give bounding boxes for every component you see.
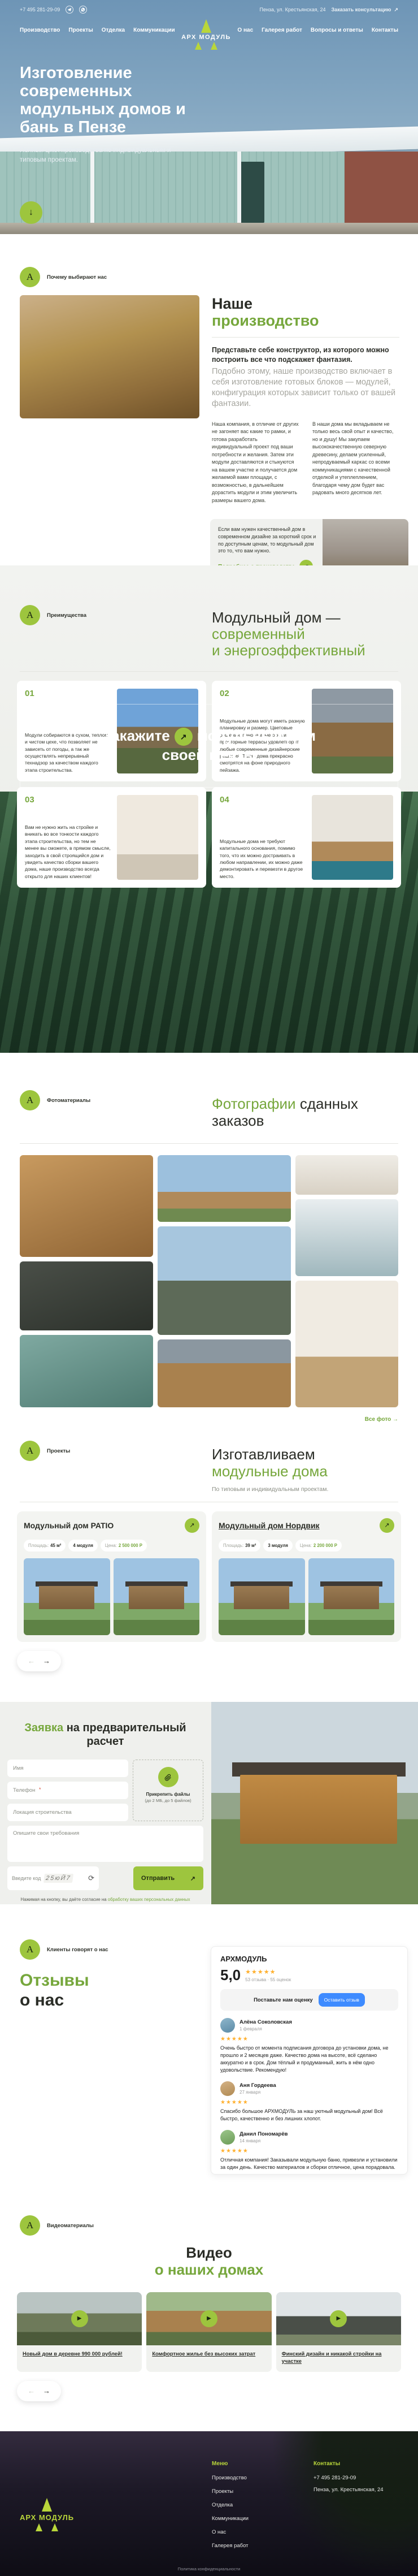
section-label-text: Проекты [47, 1448, 70, 1454]
production-lead-bold: Представьте себе конструктор, из которог… [212, 345, 399, 365]
reviewer-name: Алёна Соколовская [240, 2019, 292, 2025]
project-title[interactable]: Модульный дом PATIO [24, 1521, 114, 1530]
production-section: А Почему выбирают нас Нашепроизводство П… [0, 234, 418, 565]
gallery-photo[interactable] [158, 1339, 291, 1407]
whatsapp-icon[interactable] [79, 6, 87, 14]
review-text: Спасибо большое АРХМОДУЛЬ за наш уютный … [220, 2108, 398, 2123]
arrow-up-right-icon: ↗ [190, 1875, 195, 1882]
section-label-text: Видеоматериалы [47, 2223, 94, 2229]
advantage-photo [117, 795, 198, 880]
card-number: 04 [220, 795, 306, 805]
form-panel: Заявка на предварительный расчет * Прикр… [0, 1702, 211, 1904]
reviews-count: 53 отзыва · 55 оценок [245, 1977, 291, 1982]
video-caption[interactable]: Финский дизайн и никакой стройки на учас… [276, 2345, 401, 2372]
phone-field-wrap: * [7, 1782, 128, 1799]
play-icon[interactable]: ▶ [71, 2310, 88, 2327]
tree-icon [51, 2523, 58, 2531]
icon-glyph: ▶ [77, 2315, 82, 2322]
video-carousel-nav: ← → [17, 2381, 61, 2401]
hero-subtitle: Полный цикл производства по индивидуальн… [20, 146, 189, 166]
prev-arrow-icon[interactable]: ← [28, 1657, 35, 1665]
modules-pill: 4 модуля [68, 1540, 98, 1551]
all-photos-link[interactable]: Все фото → [20, 1416, 398, 1423]
avatar [220, 2130, 235, 2145]
photo-decoration [238, 162, 264, 223]
arrow-up-right-icon: ↗ [180, 732, 187, 742]
projects-heading: Изготавливаем модульные дома [212, 1446, 408, 1480]
divider [20, 1502, 398, 1502]
tree-icon [211, 42, 217, 50]
heading-green-part: Отзывы [20, 1971, 89, 1990]
phone-link[interactable]: +7 495 281-29-09 [20, 7, 60, 12]
video-card[interactable]: ▶ Новый дом в деревне 990 000 рублей! [17, 2292, 142, 2372]
link-text: Все фото [365, 1416, 391, 1423]
photo-decoration [129, 1586, 184, 1609]
card-text: Вам не нужно жить на стройке и вникать в… [25, 818, 111, 880]
gallery-photo[interactable] [158, 1226, 291, 1335]
order-button[interactable]: ↗ [175, 728, 193, 746]
heading-green-part: модульные дома [212, 1463, 328, 1480]
video-thumbnail[interactable]: ▶ [146, 2292, 271, 2345]
rating-value: 5,0 [220, 1968, 241, 1982]
attach-hint: (до 2 МБ, до 5 файлов) [138, 1798, 198, 1803]
rate-prompt: Поставьте нам оценку [254, 1997, 313, 2003]
photo-decoration [234, 1586, 289, 1609]
card-number: 03 [25, 795, 111, 805]
gallery-photo[interactable] [20, 1261, 153, 1330]
heading-green-part: современный [212, 625, 305, 642]
production-photo [20, 295, 199, 418]
project-card-nordvik[interactable]: Модульный дом Нордвик ↗ Площадь:39 м² 3 … [212, 1511, 401, 1642]
advantage-card-04: 04 Модульные дома не требуют капитальног… [212, 787, 401, 888]
projects-section: А Проекты Изготавливаем модульные дома П… [0, 1425, 418, 1702]
prev-arrow-icon[interactable]: ← [28, 2387, 35, 2395]
card-number: 01 [25, 689, 111, 698]
production-column-2: В наши дома мы вкладываем не только весь… [312, 421, 399, 505]
review-date: 27 января [240, 2090, 276, 2095]
cta-card-text: Если вам нужен качественный дом в соврем… [218, 526, 317, 555]
review-item: Данил Пономарёв14 января ★★★★★ Отличная … [220, 2130, 398, 2171]
reviews-section: А Клиенты говорят о нас Отзывы о нас АРХ… [0, 1904, 418, 2194]
location-field[interactable] [7, 1804, 128, 1821]
video-thumbnail[interactable]: ▶ [276, 2292, 401, 2345]
star-icons: ★★★★★ [245, 1969, 291, 1976]
widget-org-name: АРХМОДУЛЬ [220, 1955, 398, 1963]
icon-glyph: ▶ [336, 2315, 341, 2322]
advantages-heading: Модульный дом — современный и энергоэффе… [212, 610, 398, 659]
nav-item-communications[interactable]: Коммуникации [133, 27, 175, 33]
icon-glyph: ↗ [189, 1522, 194, 1529]
play-icon[interactable]: ▶ [330, 2310, 347, 2327]
icon-glyph: ▶ [207, 2315, 211, 2322]
consent-text-part: Нажимая на кнопку, вы даёте согласие на [21, 1897, 107, 1902]
video-thumbnail[interactable]: ▶ [17, 2292, 142, 2345]
footer-contacts: Контакты +7 495 281-29-09 Пенза, ул. Кре… [313, 2461, 384, 2499]
pill-value: 3 модуля [268, 1543, 288, 1548]
project-photo[interactable] [219, 1558, 305, 1635]
photo-decoration [271, 2431, 418, 2576]
pill-label: Площадь: [28, 1543, 49, 1548]
heading-green-part: и энергоэффективный [212, 642, 365, 659]
order-banner: Закажите↗модульный дом своей мечты [20, 704, 398, 788]
brand-logo[interactable]: АРХ МОДУЛЬ [181, 19, 231, 50]
submit-button[interactable]: Отправить ↗ [133, 1866, 203, 1890]
tree-icon [201, 19, 211, 33]
footer-menu-item[interactable]: Коммуникации [212, 2516, 249, 2522]
photo-decoration [324, 1586, 379, 1609]
pill-value: 2 200 000 Р [313, 1543, 337, 1548]
brand-mark-icon: А [20, 2215, 40, 2236]
project-card-patio[interactable]: Модульный дом PATIO ↗ Площадь:45 м² 4 мо… [17, 1511, 206, 1642]
review-item: Алёна Соколовская1 февраля ★★★★★ Очень б… [220, 2018, 398, 2074]
price-pill: Цена:2 200 000 Р [295, 1540, 342, 1551]
brand-name: АРХ МОДУЛЬ [181, 34, 231, 41]
refresh-icon[interactable]: ⟳ [88, 1874, 94, 1883]
video-section: А Видеоматериалы Видео о наших домах ▶ Н… [0, 2194, 418, 2431]
privacy-policy-link[interactable]: Политика конфиденциальности [0, 2566, 418, 2571]
projects-subtitle: По типовым и индивидуальным проектам. [212, 1486, 408, 1493]
brand-mark-icon: А [20, 1090, 40, 1110]
projects-carousel-nav: ← → [17, 1651, 61, 1671]
footer-menu-item[interactable]: Проекты [212, 2488, 249, 2495]
gallery-section: А Фотоматериалы Фотографии сданных заказ… [0, 1053, 418, 1425]
star-icons: ★★★★★ [220, 2148, 398, 2154]
photo-decoration [39, 1586, 94, 1609]
heading-dark-part: Модульный дом — [212, 609, 341, 626]
price-pill: Цена:2 500 000 Р [101, 1540, 147, 1551]
star-icons: ★★★★★ [220, 2099, 398, 2106]
name-field[interactable] [7, 1760, 128, 1777]
pill-value: 45 м² [50, 1543, 61, 1548]
footer-menu-item[interactable]: Производство [212, 2475, 249, 2481]
telegram-icon[interactable] [66, 6, 73, 14]
footer-phone[interactable]: +7 495 281-29-09 [313, 2475, 384, 2481]
gallery-photo[interactable] [20, 1155, 153, 1257]
footer-menu-item[interactable]: О нас [212, 2529, 249, 2535]
brand-mark-icon: А [20, 1939, 40, 1960]
section-label: А Почему выбирают нас [0, 267, 418, 287]
brand-mark-icon: А [20, 267, 40, 287]
card-text: Модульные дома не требуют капитального о… [220, 832, 306, 880]
heading-green-part: производство [212, 312, 319, 329]
gallery-photo[interactable] [158, 1155, 291, 1222]
section-label: А Видеоматериалы [0, 2215, 418, 2236]
footer-menu-item[interactable]: Отделка [212, 2502, 249, 2508]
address-text: Пенза, ул. Крестьянская, 24 [259, 7, 325, 12]
photo-decoration [0, 223, 418, 234]
consent-text: Нажимая на кнопку, вы даёте согласие на … [7, 1897, 203, 1902]
gallery-heading: Фотографии сданных заказов [212, 1096, 408, 1130]
nav-item-finishing[interactable]: Отделка [102, 27, 125, 33]
project-photo[interactable] [308, 1558, 395, 1635]
pill-value: 4 модуля [73, 1543, 93, 1548]
section-label-text: Фотоматериалы [47, 1097, 90, 1104]
review-item: Аня Гордеева27 января ★★★★★ Спасибо боль… [220, 2081, 398, 2123]
page: +7 495 281-29-09 Пенза, ул. Крестьянская… [0, 0, 418, 2576]
project-photo[interactable] [24, 1558, 110, 1635]
modules-pill: 3 модуля [263, 1540, 293, 1551]
card-number: 02 [220, 689, 306, 698]
brand-mark-icon: А [20, 605, 40, 625]
area-pill: Площадь:39 м² [219, 1540, 260, 1551]
nav-item-gallery[interactable]: Галерея работ [262, 27, 302, 33]
gallery-grid [20, 1155, 398, 1407]
brand-name: АРХ МОДУЛЬ [20, 2513, 74, 2522]
avatar [220, 2018, 235, 2033]
banner-text: Закажите↗модульный дом своей мечты [85, 727, 333, 765]
projects-grid: Модульный дом PATIO ↗ Площадь:45 м² 4 мо… [17, 1511, 401, 1642]
yandex-reviews-widget: АРХМОДУЛЬ 5,0 ★★★★★ 53 отзыва · 55 оцено… [211, 1946, 408, 2175]
star-icons: ★★★★★ [220, 2036, 398, 2042]
main-nav: Производство Проекты Отделка Коммуникаци… [0, 14, 418, 50]
photo-decoration [345, 152, 418, 223]
gallery-photo[interactable] [20, 1335, 153, 1407]
pill-label: Цена: [105, 1543, 117, 1548]
section-label-text: Клиенты говорят о нас [47, 1947, 108, 1953]
video-heading: Видео о наших домах [0, 2245, 418, 2279]
request-form-section: Заявка на предварительный расчет * Прикр… [0, 1702, 418, 1904]
consent-link[interactable]: обработку ваших персональных данных [108, 1897, 190, 1902]
arrow-up-right-icon: ↗ [394, 7, 398, 13]
banner-text-part: Закажите [102, 727, 170, 744]
nav-item-production[interactable]: Производство [20, 27, 60, 33]
captcha-box[interactable]: Введите код 25юЙ7 ⟳ [7, 1866, 99, 1890]
reviewer-name: Данил Пономарёв [240, 2131, 288, 2137]
captcha-input[interactable]: Введите код [12, 1875, 41, 1881]
heading-dark-part: о нас [20, 1991, 64, 2009]
divider [212, 337, 399, 338]
divider [20, 671, 398, 672]
footer: АРХ МОДУЛЬ Меню Производство Проекты Отд… [0, 2431, 418, 2576]
nav-item-faq[interactable]: Вопросы и ответы [311, 27, 363, 33]
attach-label: Прикрепить файлы [138, 1792, 198, 1797]
attach-files-button[interactable]: Прикрепить файлы (до 2 МБ, до 5 файлов) [133, 1760, 203, 1821]
paperclip-icon [158, 1767, 178, 1787]
footer-menu-item[interactable]: Галерея работ [212, 2543, 249, 2549]
arrow-up-right-icon[interactable]: ↗ [185, 1518, 199, 1533]
icon-glyph: ↗ [384, 1522, 389, 1529]
production-heading: Нашепроизводство [212, 295, 399, 329]
form-heading: Заявка на предварительный расчет [12, 1721, 199, 1748]
heading-green-part: Заявка [24, 1722, 63, 1734]
project-photo[interactable] [114, 1558, 200, 1635]
video-card[interactable]: ▶ Комфортное жилье без высоких затрат [146, 2292, 271, 2372]
section-label-text: Почему выбирают нас [47, 274, 107, 280]
production-column-1: Наша компания, в отличие от других не за… [212, 421, 299, 505]
brand-mark-icon: А [20, 1441, 40, 1461]
advantage-photo [312, 795, 393, 880]
message-field[interactable] [7, 1826, 203, 1862]
project-title[interactable]: Модульный дом Нордвик [219, 1521, 320, 1530]
tree-icon [195, 42, 202, 50]
play-icon[interactable]: ▶ [201, 2310, 217, 2327]
form-photo [211, 1702, 418, 1904]
photo-decoration [237, 152, 241, 223]
heading-green-part: о наших домах [155, 2261, 263, 2278]
arrow-up-right-icon[interactable]: ↗ [380, 1518, 394, 1533]
footer-menu: Меню Производство Проекты Отделка Коммун… [212, 2461, 249, 2556]
avatar [220, 2081, 235, 2096]
button-label: Отправить [141, 1875, 175, 1882]
area-pill: Площадь:45 м² [24, 1540, 66, 1551]
section-label-text: Преимущества [47, 612, 86, 619]
arrow-down-icon: ↓ [29, 208, 33, 218]
review-text: Очень быстро от момента подписания догов… [220, 2045, 398, 2074]
arrow-right-icon: → [393, 1416, 398, 1423]
gallery-photo[interactable] [295, 1155, 398, 1195]
footer-logo[interactable]: АРХ МОДУЛЬ [20, 2498, 74, 2531]
pill-label: Цена: [300, 1543, 312, 1548]
review-text: Отличная компания! Заказывали модульную … [220, 2156, 398, 2171]
gallery-photo[interactable] [295, 1281, 398, 1407]
advantages-section: А Преимущества Модульный дом — современн… [0, 565, 418, 1053]
pill-value: 39 м² [245, 1543, 256, 1548]
footer-contacts-title: Контакты [313, 2461, 384, 2467]
leave-review-button[interactable]: Оставить отзыв [319, 1993, 365, 2007]
heading-dark-part: Изготавливаем [212, 1446, 315, 1463]
hero-title: Изготовление современных модульных домов… [20, 64, 229, 137]
nav-item-about[interactable]: О нас [237, 27, 253, 33]
nav-item-contacts[interactable]: Контакты [372, 27, 398, 33]
video-caption[interactable]: Новый дом в деревне 990 000 рублей! [17, 2345, 142, 2365]
hero-section: +7 495 281-29-09 Пенза, ул. Крестьянская… [0, 0, 418, 234]
tree-icon [36, 2523, 42, 2531]
review-date: 1 февраля [240, 2026, 292, 2032]
phone-field[interactable] [7, 1782, 128, 1799]
gallery-photo[interactable] [295, 1199, 398, 1276]
review-date: 14 января [240, 2138, 288, 2143]
rate-us-bar: Поставьте нам оценку Оставить отзыв [220, 1989, 398, 2011]
advantage-card-03: 03 Вам не нужно жить на стройке и вникат… [17, 787, 206, 888]
pill-value: 2 500 000 Р [119, 1543, 142, 1548]
video-caption[interactable]: Комфортное жилье без высоких затрат [146, 2345, 271, 2365]
footer-menu-title: Меню [212, 2461, 249, 2467]
heading-dark-part: Наше [212, 295, 252, 312]
video-card[interactable]: ▶ Финский дизайн и никакой стройки на уч… [276, 2292, 401, 2372]
topbar: +7 495 281-29-09 Пенза, ул. Крестьянская… [0, 0, 418, 14]
heading-dark-part: на предварительный расчет [67, 1722, 186, 1748]
consult-link[interactable]: Заказать консультацию ↗ [332, 7, 398, 13]
footer-address: Пенза, ул. Крестьянская, 24 [313, 2487, 384, 2493]
required-mark: * [39, 1787, 41, 1792]
tree-icon [42, 2498, 52, 2512]
next-arrow-icon[interactable]: → [43, 1657, 50, 1665]
photo-decoration [240, 1775, 397, 1844]
reviewer-name: Аня Гордеева [240, 2082, 276, 2089]
video-grid: ▶ Новый дом в деревне 990 000 рублей! ▶ … [17, 2292, 401, 2372]
captcha-image: 25юЙ7 [43, 1874, 73, 1883]
next-arrow-icon[interactable]: → [43, 2387, 50, 2395]
nav-item-projects[interactable]: Проекты [68, 27, 93, 33]
scroll-down-button[interactable]: ↓ [20, 201, 42, 224]
production-lead-gray: Подобно этому, наше производство включае… [212, 366, 399, 409]
heading-green-part: Фотографии [212, 1095, 296, 1112]
pill-label: Площадь: [223, 1543, 243, 1548]
heading-dark-part: Видео [186, 2244, 232, 2261]
divider [20, 1143, 398, 1144]
